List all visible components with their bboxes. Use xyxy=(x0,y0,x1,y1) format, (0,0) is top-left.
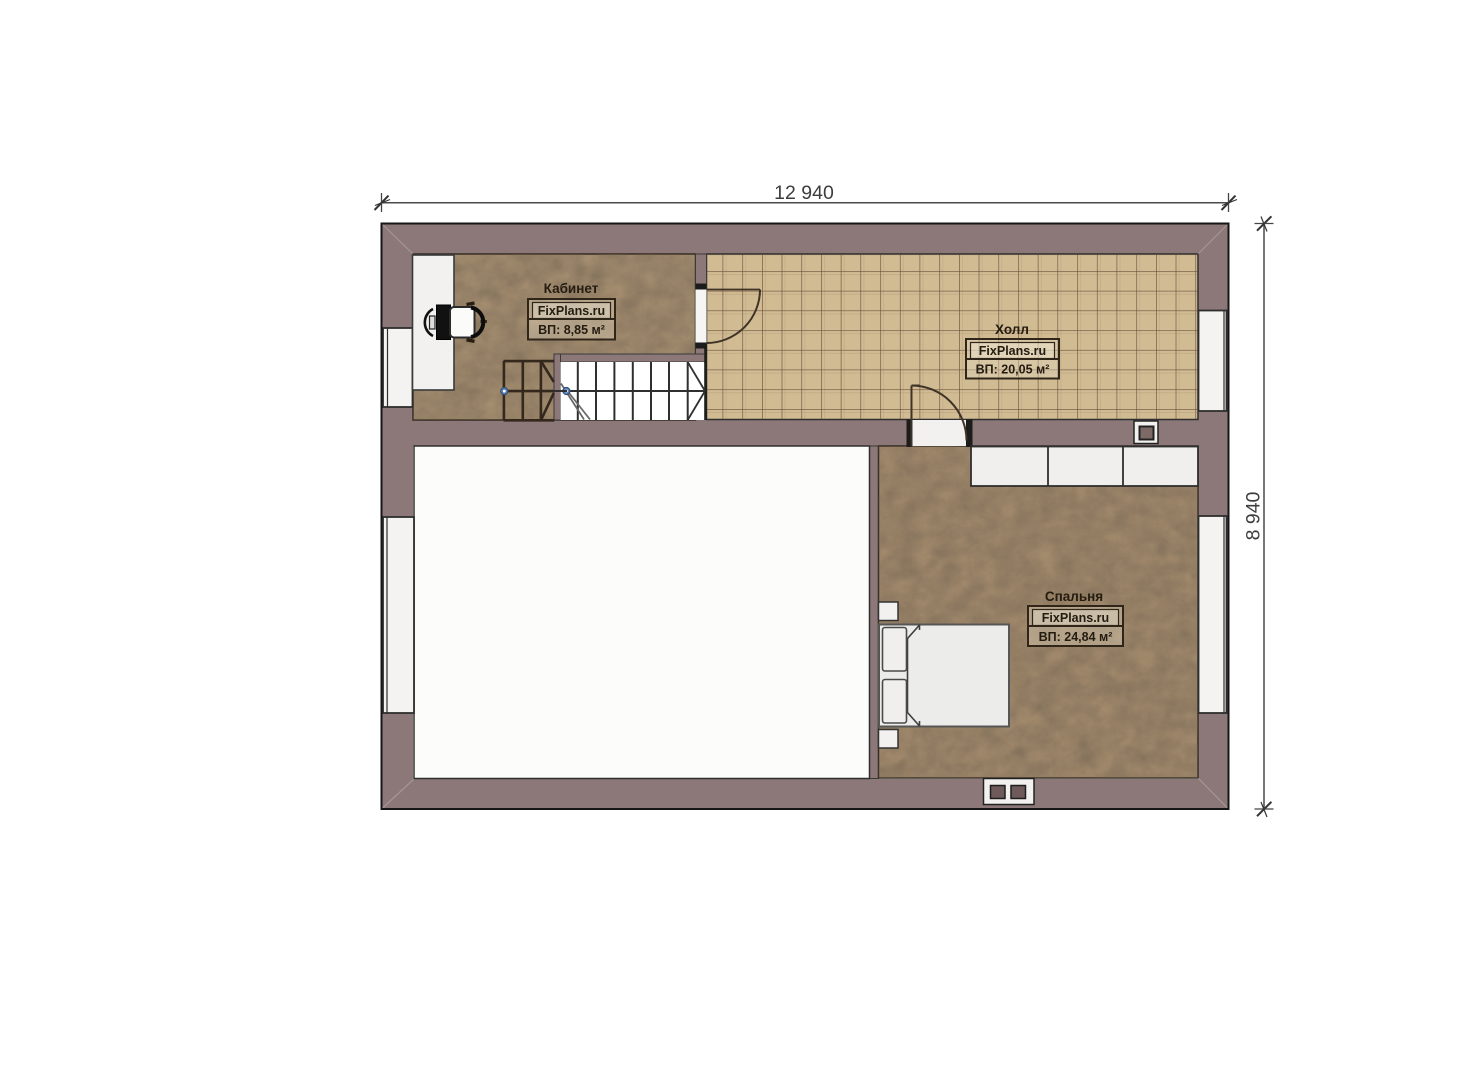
svg-text:ВП: 8,85 м²: ВП: 8,85 м² xyxy=(538,323,605,337)
svg-text:Спальня: Спальня xyxy=(1045,589,1103,604)
svg-text:ВП: 20,05 м²: ВП: 20,05 м² xyxy=(976,363,1050,377)
svg-text:FixPlans.ru: FixPlans.ru xyxy=(979,344,1046,358)
svg-text:Холл: Холл xyxy=(995,322,1029,337)
svg-text:FixPlans.ru: FixPlans.ru xyxy=(538,304,605,318)
svg-text:8 940: 8 940 xyxy=(1243,491,1265,540)
svg-text:12 940: 12 940 xyxy=(774,182,834,204)
svg-text:FixPlans.ru: FixPlans.ru xyxy=(1042,611,1109,625)
svg-text:Кабинет: Кабинет xyxy=(544,281,599,296)
svg-text:ВП: 24,84 м²: ВП: 24,84 м² xyxy=(1039,630,1113,644)
